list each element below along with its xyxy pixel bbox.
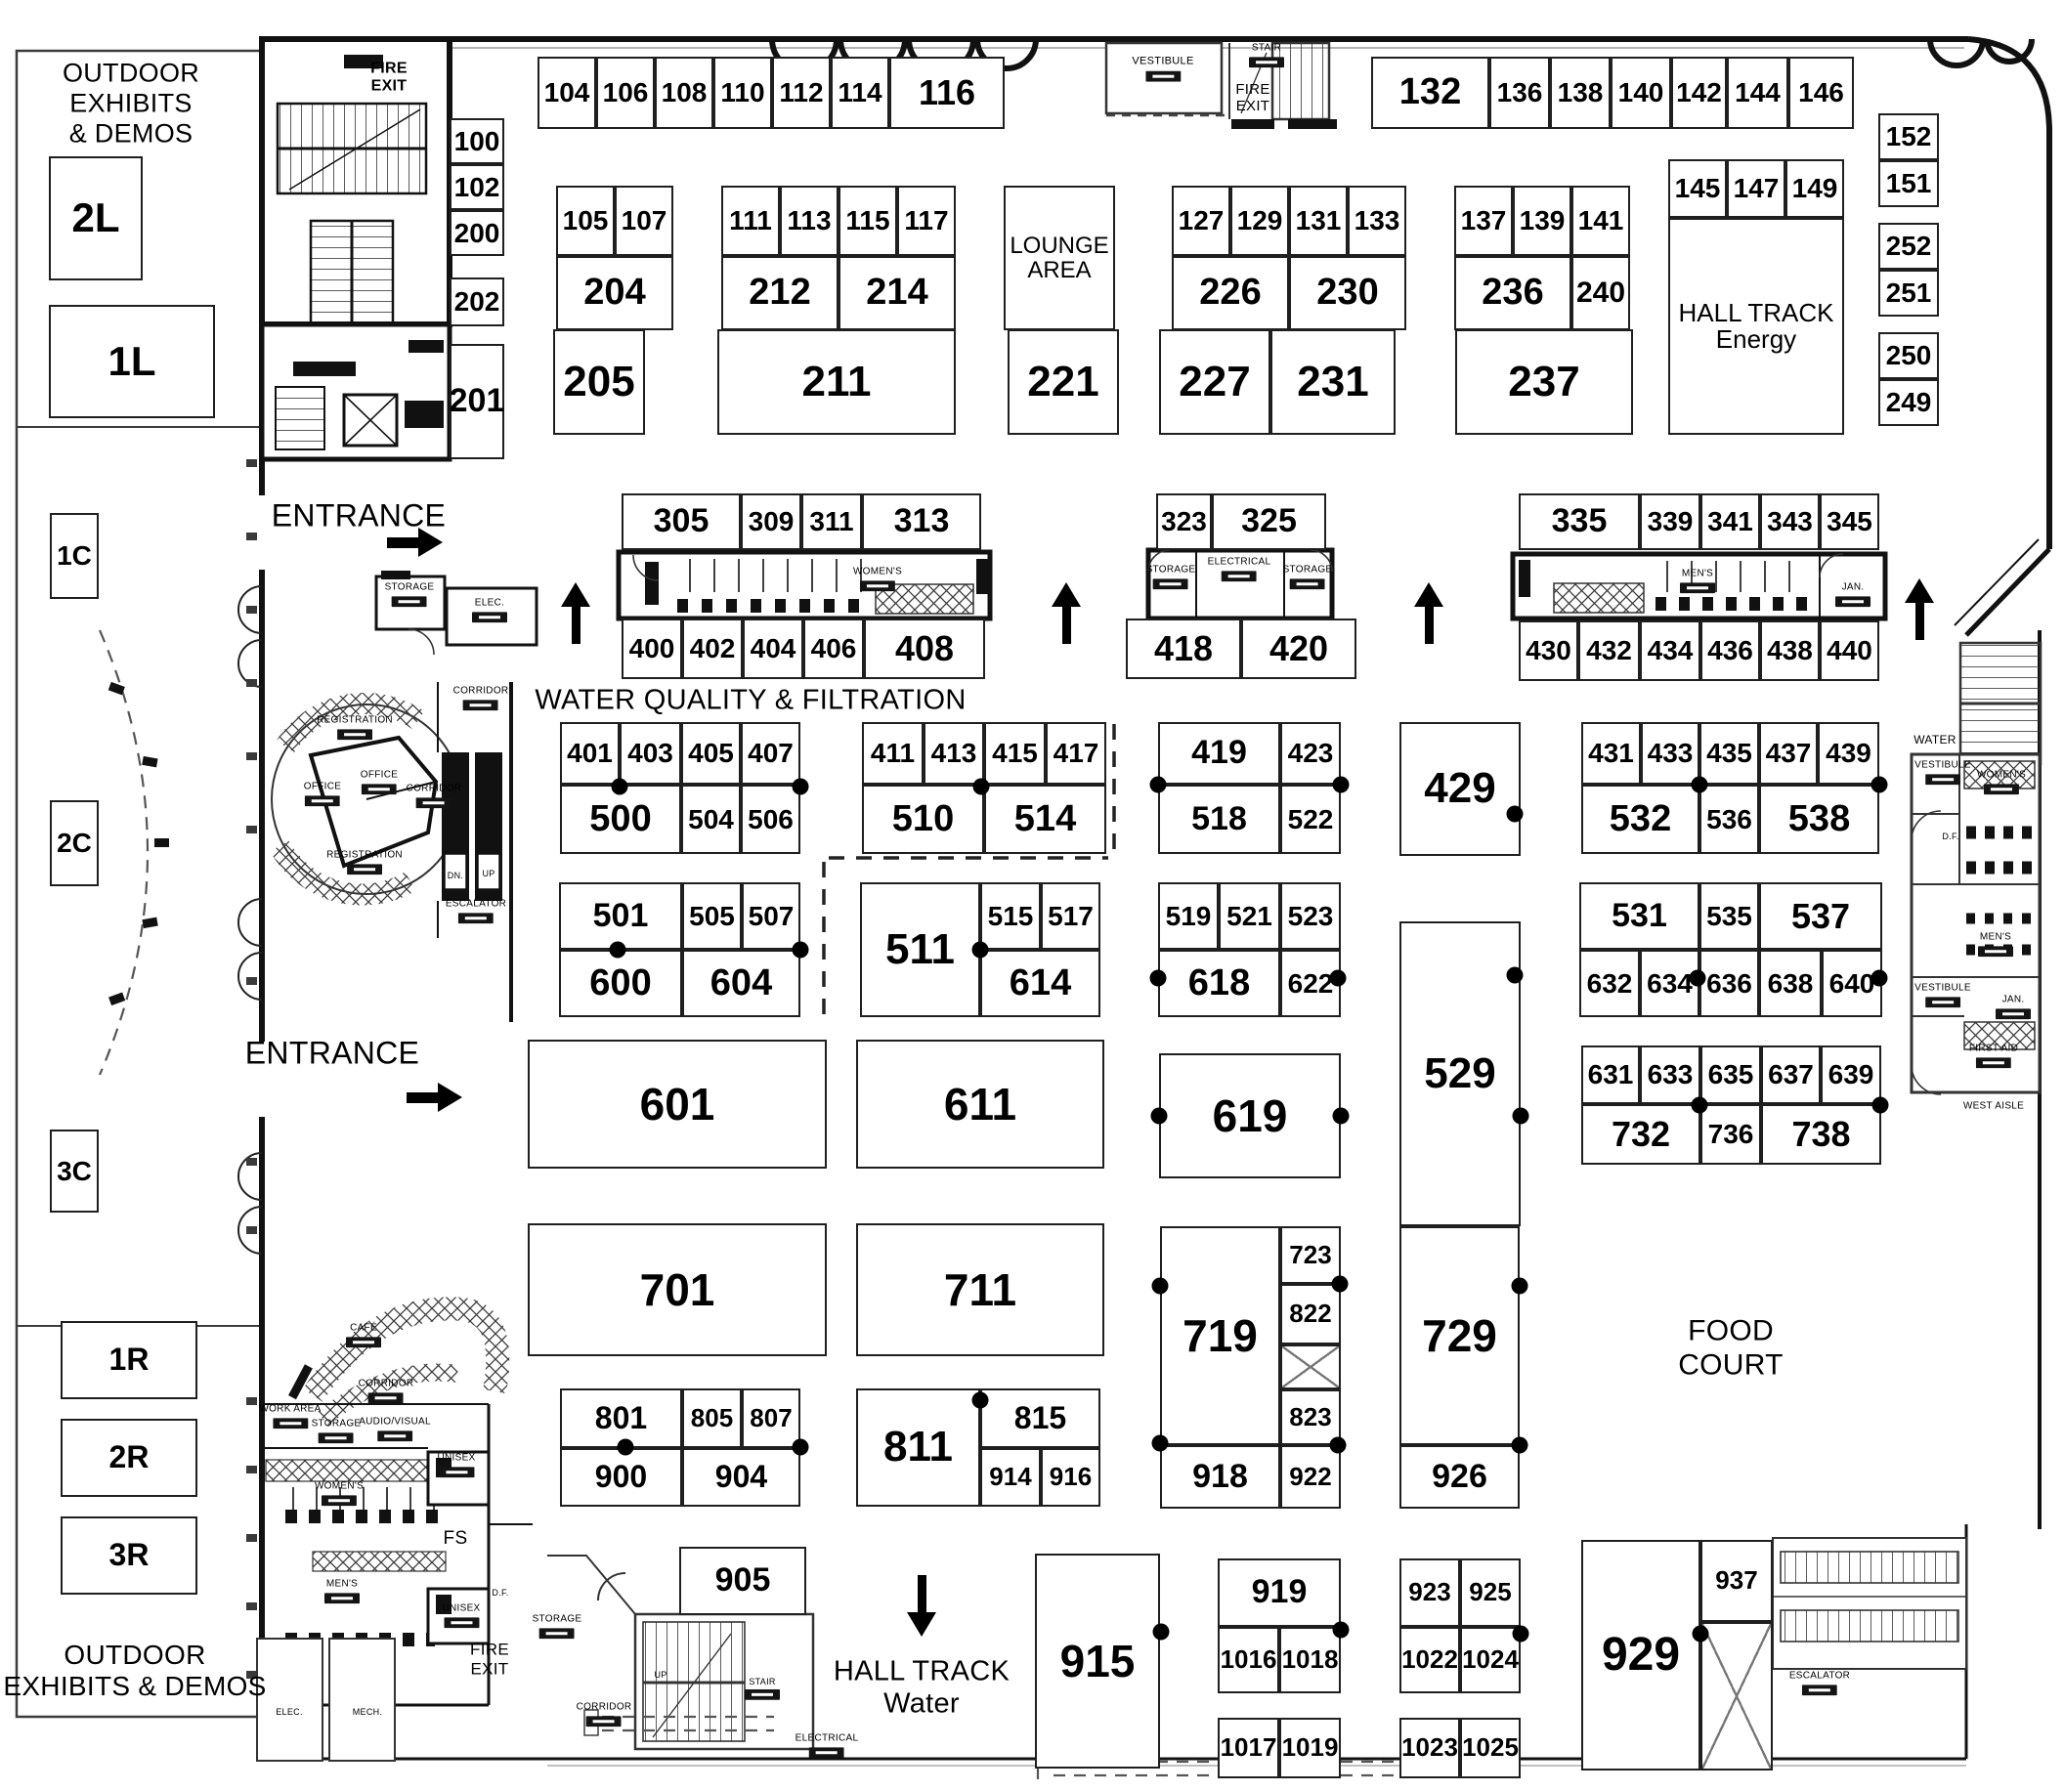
label-electrical: ELECTRICAL xyxy=(795,1732,859,1743)
booth-423[interactable]: 423 xyxy=(1280,722,1341,785)
booth-252[interactable]: 252 xyxy=(1878,223,1939,270)
down-arrow-icon xyxy=(907,1575,936,1637)
column-dot xyxy=(1153,1624,1170,1641)
booth-139[interactable]: 139 xyxy=(1513,186,1571,256)
booth-429[interactable]: 429 xyxy=(1399,722,1521,856)
label-wrap: STORAGE xyxy=(1283,564,1333,589)
booth-311[interactable]: 311 xyxy=(801,493,862,550)
booth-106[interactable]: 106 xyxy=(596,57,655,129)
label-wrap: DN. xyxy=(448,871,463,880)
column-dot xyxy=(1333,1108,1350,1125)
label-electrical: ELECTRICAL xyxy=(1208,556,1271,567)
booth-400[interactable]: 400 xyxy=(622,619,682,679)
booth-535[interactable]: 535 xyxy=(1699,882,1759,950)
label-escalator: ESCALATOR xyxy=(1789,1670,1850,1681)
label-wrap: OUTDOOR EXHIBITS & DEMOS xyxy=(3,1640,266,1702)
booth-823[interactable]: 823 xyxy=(1280,1389,1341,1445)
column-dot xyxy=(1512,1278,1528,1295)
booth-231[interactable]: 231 xyxy=(1270,329,1396,435)
booth-116[interactable]: 116 xyxy=(889,57,1005,129)
booth-411[interactable]: 411 xyxy=(862,722,924,785)
booth-614[interactable]: 614 xyxy=(980,950,1100,1017)
column-dot xyxy=(973,779,990,795)
label-wrap: STORAGE xyxy=(312,1418,362,1443)
booth-339[interactable]: 339 xyxy=(1640,493,1700,550)
booth-226[interactable]: 226 xyxy=(1172,256,1289,330)
booth-227[interactable]: 227 xyxy=(1159,329,1270,435)
booth-635[interactable]: 635 xyxy=(1700,1045,1761,1104)
booth-900[interactable]: 900 xyxy=(560,1448,682,1507)
column-dot xyxy=(793,942,809,959)
column-dot xyxy=(1333,1622,1350,1639)
room-number-tag xyxy=(809,1747,844,1758)
booth-401[interactable]: 401 xyxy=(560,722,620,785)
booth-438[interactable]: 438 xyxy=(1760,620,1820,681)
booth-515[interactable]: 515 xyxy=(980,882,1041,950)
booth-1025[interactable]: 1025 xyxy=(1460,1718,1521,1778)
up-arrow-icon xyxy=(1414,582,1443,644)
booth-519[interactable]: 519 xyxy=(1158,882,1219,950)
booth-514[interactable]: 514 xyxy=(984,785,1106,854)
booth-916[interactable]: 916 xyxy=(1041,1448,1100,1507)
booth-403[interactable]: 403 xyxy=(620,722,681,785)
label-wrap: OUTDOOR EXHIBITS & DEMOS xyxy=(63,58,199,149)
booth-3r[interactable]: 3R xyxy=(61,1516,197,1595)
label-wrap: VESTIBULE xyxy=(1132,56,1193,82)
booth-2l[interactable]: 2L xyxy=(49,156,143,280)
booth-905[interactable]: 905 xyxy=(679,1547,806,1615)
booth-418[interactable]: 418 xyxy=(1126,619,1241,679)
booth-822[interactable]: 822 xyxy=(1280,1284,1341,1344)
booth-147[interactable]: 147 xyxy=(1727,159,1785,218)
booth-149[interactable]: 149 xyxy=(1785,159,1844,218)
booth-1r[interactable]: 1R xyxy=(61,1321,197,1399)
booth-419[interactable]: 419 xyxy=(1158,722,1280,785)
escalator-left xyxy=(438,682,511,1022)
booth-151[interactable]: 151 xyxy=(1878,160,1939,207)
booth-201[interactable]: 201 xyxy=(450,344,504,459)
booth-436[interactable]: 436 xyxy=(1700,620,1760,681)
room-number-tag xyxy=(416,797,451,808)
booth-345[interactable]: 345 xyxy=(1820,493,1879,550)
booth-hall-track-energy[interactable]: HALL TRACK Energy xyxy=(1668,218,1844,435)
booth-114[interactable]: 114 xyxy=(831,57,889,129)
booth-325[interactable]: 325 xyxy=(1212,493,1326,550)
booth-309[interactable]: 309 xyxy=(741,493,801,550)
booth-537[interactable]: 537 xyxy=(1759,882,1882,950)
booth-108[interactable]: 108 xyxy=(655,57,713,129)
booth-723[interactable]: 723 xyxy=(1280,1226,1341,1284)
booth-619[interactable]: 619 xyxy=(1159,1053,1341,1178)
label-vestibule: VESTIBULE xyxy=(1914,759,1971,770)
booth-104[interactable]: 104 xyxy=(537,57,596,129)
booth-408[interactable]: 408 xyxy=(864,619,985,679)
booth-404[interactable]: 404 xyxy=(743,619,803,679)
label-jan-: JAN. xyxy=(2002,994,2025,1004)
booth-212[interactable]: 212 xyxy=(721,256,838,330)
booth-432[interactable]: 432 xyxy=(1578,620,1640,681)
booth-922[interactable]: 922 xyxy=(1280,1445,1341,1509)
column-dot xyxy=(1513,1108,1529,1125)
label-wrap: VESTIBULE xyxy=(1914,759,1971,785)
booth-815[interactable]: 815 xyxy=(980,1388,1100,1448)
booth-1022[interactable]: 1022 xyxy=(1399,1627,1460,1693)
label-women-s: WOMEN'S xyxy=(1977,769,2026,780)
booth-604[interactable]: 604 xyxy=(682,950,800,1017)
label-outdoor-exhibits-demos: OUTDOOR EXHIBITS & DEMOS xyxy=(3,1640,266,1701)
booth-500[interactable]: 500 xyxy=(560,785,681,854)
room-number-tag xyxy=(273,1418,308,1429)
up-arrow-icon xyxy=(1052,582,1081,644)
column-dot xyxy=(1151,1108,1168,1125)
booth-405[interactable]: 405 xyxy=(681,722,741,785)
restroom-island-left xyxy=(619,552,990,619)
booth-313[interactable]: 313 xyxy=(862,493,981,550)
label-fire-exit: FIRE EXIT xyxy=(370,61,408,95)
label-elec-: ELEC. xyxy=(475,597,504,608)
room-number-tag xyxy=(463,700,498,710)
column-dot xyxy=(610,942,626,959)
booth-929[interactable]: 929 xyxy=(1581,1540,1700,1771)
label-wrap: ELEC. xyxy=(276,1707,303,1717)
booth-811[interactable]: 811 xyxy=(856,1388,980,1507)
column-dot xyxy=(793,779,809,795)
booth-110[interactable]: 110 xyxy=(713,57,772,129)
booth-2r[interactable]: 2R xyxy=(61,1419,197,1497)
booth-341[interactable]: 341 xyxy=(1700,493,1760,550)
label-d-f-: D.F. xyxy=(1942,832,1958,841)
booth-1024[interactable]: 1024 xyxy=(1460,1627,1521,1693)
booth-146[interactable]: 146 xyxy=(1788,57,1854,129)
booth-127[interactable]: 127 xyxy=(1172,186,1230,256)
column-dot xyxy=(1152,1435,1169,1452)
label-wrap: FIRST AID xyxy=(1969,1043,2018,1068)
booth-738[interactable]: 738 xyxy=(1761,1104,1881,1165)
column-dot xyxy=(1871,970,1888,987)
booth-505[interactable]: 505 xyxy=(682,882,742,950)
label-office: OFFICE xyxy=(361,769,398,780)
label-wrap: CORRIDOR xyxy=(359,1378,414,1403)
booth-221[interactable]: 221 xyxy=(1008,329,1119,435)
label-west-aisle: WEST AISLE xyxy=(1963,1100,2024,1111)
booth-923[interactable]: 923 xyxy=(1399,1558,1460,1627)
booth-142[interactable]: 142 xyxy=(1671,57,1727,129)
room-number-tag xyxy=(337,729,372,740)
booth-250[interactable]: 250 xyxy=(1878,332,1939,379)
crossed-area xyxy=(1280,1344,1341,1389)
column-dot xyxy=(618,1439,634,1456)
booth-440[interactable]: 440 xyxy=(1820,620,1879,681)
booth-632[interactable]: 632 xyxy=(1579,950,1640,1017)
booth-137[interactable]: 137 xyxy=(1454,186,1513,256)
booth-406[interactable]: 406 xyxy=(803,619,864,679)
booth-532[interactable]: 532 xyxy=(1581,785,1699,854)
booth-413[interactable]: 413 xyxy=(924,722,984,785)
booth-918[interactable]: 918 xyxy=(1160,1445,1280,1509)
booth-618[interactable]: 618 xyxy=(1158,950,1280,1017)
booth-251[interactable]: 251 xyxy=(1878,270,1939,317)
room-number-tag xyxy=(347,864,382,875)
booth-719[interactable]: 719 xyxy=(1160,1226,1280,1445)
booth-112[interactable]: 112 xyxy=(772,57,831,129)
booth-701[interactable]: 701 xyxy=(528,1223,827,1356)
label-corridor: CORRIDOR xyxy=(407,783,462,793)
booth-249[interactable]: 249 xyxy=(1878,379,1939,426)
booth-117[interactable]: 117 xyxy=(897,186,956,256)
label-wrap: STAIR xyxy=(745,1677,780,1700)
label-wrap: D.F. xyxy=(1942,832,1958,841)
label-stair: STAIR xyxy=(1252,42,1281,53)
booth-111[interactable]: 111 xyxy=(721,186,780,256)
label-wrap: OFFICE xyxy=(361,769,398,794)
booth-523[interactable]: 523 xyxy=(1280,882,1341,950)
booth-132[interactable]: 132 xyxy=(1371,57,1489,129)
room-number-tag xyxy=(439,1467,474,1477)
room-number-tag xyxy=(1802,1685,1837,1695)
booth-611[interactable]: 611 xyxy=(856,1040,1104,1169)
booth-129[interactable]: 129 xyxy=(1230,186,1289,256)
booth-100[interactable]: 100 xyxy=(450,118,504,164)
room-number-tag xyxy=(1925,997,1960,1007)
booth-200[interactable]: 200 xyxy=(450,210,504,256)
booth-202[interactable]: 202 xyxy=(450,277,504,326)
label-wrap: WEST AISLE xyxy=(1963,1100,2024,1112)
booth-510[interactable]: 510 xyxy=(862,785,984,854)
room-number-tag xyxy=(1984,784,2019,794)
booth-639[interactable]: 639 xyxy=(1821,1045,1881,1104)
label-wrap: MEN'S xyxy=(324,1578,360,1603)
booth-237[interactable]: 237 xyxy=(1455,329,1633,435)
label-corridor: CORRIDOR xyxy=(359,1378,414,1388)
label-up: UP xyxy=(654,1670,666,1680)
booth-204[interactable]: 204 xyxy=(556,256,673,330)
label-corridor: CORRIDOR xyxy=(577,1701,632,1712)
booth-240[interactable]: 240 xyxy=(1571,256,1630,330)
column-dot xyxy=(1512,1437,1528,1454)
outdoor-curve xyxy=(100,630,169,1075)
booth-205[interactable]: 205 xyxy=(553,329,645,435)
booth-2c[interactable]: 2C xyxy=(50,800,99,886)
label-wrap: FIRE EXIT xyxy=(1235,81,1269,115)
booth-131[interactable]: 131 xyxy=(1289,186,1348,256)
label-wrap: CORRIDOR xyxy=(453,685,509,710)
booth-521[interactable]: 521 xyxy=(1219,882,1280,950)
booth-lounge-area[interactable]: LOUNGE AREA xyxy=(1004,186,1115,330)
booth-711[interactable]: 711 xyxy=(856,1223,1104,1356)
booth-1016[interactable]: 1016 xyxy=(1218,1627,1279,1693)
booth-402[interactable]: 402 xyxy=(682,619,743,679)
booth-420[interactable]: 420 xyxy=(1241,619,1356,679)
booth-138[interactable]: 138 xyxy=(1550,57,1611,129)
booth-638[interactable]: 638 xyxy=(1759,950,1822,1017)
label-storage: STORAGE xyxy=(1283,564,1333,575)
booth-1019[interactable]: 1019 xyxy=(1279,1718,1341,1778)
booth-102[interactable]: 102 xyxy=(450,164,504,210)
room-number-tag xyxy=(362,784,397,794)
label-wrap: HALL TRACK Water xyxy=(834,1656,1010,1722)
booth-518[interactable]: 518 xyxy=(1158,785,1280,854)
up-arrow-icon xyxy=(561,582,590,644)
room-number-tag xyxy=(1145,70,1181,81)
booth-807[interactable]: 807 xyxy=(742,1388,800,1448)
booth-1c[interactable]: 1C xyxy=(50,513,99,599)
booth-529[interactable]: 529 xyxy=(1399,921,1521,1226)
room-number-tag xyxy=(458,913,494,923)
booth-805[interactable]: 805 xyxy=(682,1388,742,1448)
column-dot xyxy=(1693,1626,1709,1643)
booth-136[interactable]: 136 xyxy=(1489,57,1550,129)
room-number-tag xyxy=(1680,582,1715,593)
label-wrap: AUDIO/VISUAL xyxy=(359,1416,431,1441)
label-wrap: ESCALATOR xyxy=(446,898,506,923)
booth-230[interactable]: 230 xyxy=(1289,256,1406,330)
booth-430[interactable]: 430 xyxy=(1519,620,1578,681)
room-number-tag xyxy=(1835,596,1870,607)
booth-736[interactable]: 736 xyxy=(1700,1104,1761,1165)
column-dot xyxy=(1507,806,1524,823)
label-wrap: REGISTRATION xyxy=(317,714,393,740)
label-elec-: ELEC. xyxy=(276,1707,303,1717)
booth-1018[interactable]: 1018 xyxy=(1279,1627,1341,1693)
label-caf-: CAFÉ xyxy=(350,1322,377,1333)
booth-133[interactable]: 133 xyxy=(1348,186,1406,256)
booth-335[interactable]: 335 xyxy=(1519,493,1640,550)
booth-144[interactable]: 144 xyxy=(1727,57,1788,129)
booth-915[interactable]: 915 xyxy=(1035,1554,1160,1769)
booth-914[interactable]: 914 xyxy=(980,1448,1041,1507)
room-number-tag xyxy=(586,1716,622,1727)
booth-601[interactable]: 601 xyxy=(528,1040,827,1169)
label-wrap: CORRIDOR xyxy=(407,783,462,808)
booth-323[interactable]: 323 xyxy=(1156,493,1212,550)
label-outdoor-exhibits-demos: OUTDOOR EXHIBITS & DEMOS xyxy=(63,58,199,148)
label-stair: STAIR xyxy=(749,1677,775,1686)
booth-3c[interactable]: 3C xyxy=(50,1130,99,1213)
room-number-tag xyxy=(346,1337,381,1347)
label-wrap: FS xyxy=(444,1528,468,1550)
booth-637[interactable]: 637 xyxy=(1761,1045,1821,1104)
booth-431[interactable]: 431 xyxy=(1581,722,1641,785)
room-number-tag xyxy=(1222,571,1257,581)
label-work-area: WORK AREA xyxy=(259,1403,321,1414)
room-number-tag xyxy=(1978,946,2013,957)
label-entrance: ENTRANCE xyxy=(272,498,446,533)
label-escalator: ESCALATOR xyxy=(446,898,506,909)
booth-113[interactable]: 113 xyxy=(780,186,838,256)
booth-904[interactable]: 904 xyxy=(682,1448,800,1507)
label-wrap: STORAGE xyxy=(533,1613,582,1639)
booth-1l[interactable]: 1L xyxy=(49,305,215,418)
booth-919[interactable]: 919 xyxy=(1218,1558,1341,1627)
booth-145[interactable]: 145 xyxy=(1668,159,1727,218)
booth-536[interactable]: 536 xyxy=(1699,785,1759,854)
booth-343[interactable]: 343 xyxy=(1760,493,1820,550)
booth-140[interactable]: 140 xyxy=(1611,57,1671,129)
column-dot xyxy=(793,1439,809,1456)
room-number-tag xyxy=(1290,578,1325,589)
label-wrap: STORAGE xyxy=(1146,564,1196,589)
column-dot xyxy=(1152,1278,1169,1295)
booth-107[interactable]: 107 xyxy=(615,186,673,256)
booth-729[interactable]: 729 xyxy=(1399,1226,1520,1445)
booth-1023[interactable]: 1023 xyxy=(1399,1718,1460,1778)
label-corridor: CORRIDOR xyxy=(453,685,509,696)
booth-435[interactable]: 435 xyxy=(1699,722,1759,785)
booth-407[interactable]: 407 xyxy=(741,722,800,785)
booth-937[interactable]: 937 xyxy=(1700,1540,1773,1622)
room-number-tag xyxy=(860,580,895,591)
booth-926[interactable]: 926 xyxy=(1399,1445,1520,1509)
booth-631[interactable]: 631 xyxy=(1581,1045,1640,1104)
booth-152[interactable]: 152 xyxy=(1878,113,1939,160)
label-wrap: ELECTRICAL xyxy=(1208,556,1271,581)
floor-plan: 1001022002022011041061081101121141161051… xyxy=(0,0,2064,1792)
booth-437[interactable]: 437 xyxy=(1759,722,1818,785)
booth-415[interactable]: 415 xyxy=(984,722,1046,785)
label-wrap: MECH. xyxy=(353,1707,383,1717)
booth-531[interactable]: 531 xyxy=(1579,882,1699,950)
booth-214[interactable]: 214 xyxy=(838,256,956,330)
label-storage: STORAGE xyxy=(533,1613,582,1624)
booth-434[interactable]: 434 xyxy=(1640,620,1700,681)
label-women-s: WOMEN'S xyxy=(853,566,902,576)
elevator-lobby xyxy=(262,324,450,459)
booth-501[interactable]: 501 xyxy=(559,882,682,950)
booth-511[interactable]: 511 xyxy=(860,882,980,1017)
booth-636[interactable]: 636 xyxy=(1699,950,1759,1017)
label-wrap: FOOD COURT xyxy=(1678,1315,1784,1383)
label-men-s: MEN'S xyxy=(1682,568,1713,578)
booth-141[interactable]: 141 xyxy=(1571,186,1630,256)
room-number-tag xyxy=(444,1617,479,1628)
booth-105[interactable]: 105 xyxy=(556,186,615,256)
label-wrap: ENTRANCE xyxy=(245,1036,419,1072)
room-number-tag xyxy=(368,1392,404,1403)
booth-507[interactable]: 507 xyxy=(742,882,800,950)
label-wrap: ELECTRICAL xyxy=(795,1732,859,1758)
booth-522[interactable]: 522 xyxy=(1280,785,1341,854)
booth-236[interactable]: 236 xyxy=(1454,256,1571,330)
booth-417[interactable]: 417 xyxy=(1046,722,1106,785)
booth-506[interactable]: 506 xyxy=(741,785,800,854)
label-registration: REGISTRATION xyxy=(326,849,403,860)
booth-115[interactable]: 115 xyxy=(838,186,897,256)
label-unisex: UNISEX xyxy=(437,1452,475,1463)
booth-504[interactable]: 504 xyxy=(681,785,741,854)
label-water-quality-filtration: WATER QUALITY & FILTRATION xyxy=(535,684,966,715)
label-men-s: MEN'S xyxy=(326,1578,358,1589)
booth-211[interactable]: 211 xyxy=(717,329,956,435)
label-storage: STORAGE xyxy=(385,581,435,592)
booth-600[interactable]: 600 xyxy=(559,950,682,1017)
escalator-bottom-right xyxy=(1773,1538,1966,1669)
booth-439[interactable]: 439 xyxy=(1818,722,1879,785)
booth-538[interactable]: 538 xyxy=(1759,785,1879,854)
column-dot xyxy=(1150,777,1167,793)
label-hall-track-water: HALL TRACK Water xyxy=(834,1656,1010,1720)
booth-305[interactable]: 305 xyxy=(622,493,741,550)
booth-1017[interactable]: 1017 xyxy=(1218,1718,1279,1778)
booth-732[interactable]: 732 xyxy=(1581,1104,1700,1165)
booth-925[interactable]: 925 xyxy=(1460,1558,1521,1627)
booth-633[interactable]: 633 xyxy=(1640,1045,1700,1104)
column-dot xyxy=(1692,777,1708,793)
room-number-tag xyxy=(324,1593,360,1603)
label-storage: STORAGE xyxy=(1146,564,1196,575)
booth-433[interactable]: 433 xyxy=(1641,722,1699,785)
label-dn-: DN. xyxy=(448,871,463,880)
booth-517[interactable]: 517 xyxy=(1041,882,1100,950)
